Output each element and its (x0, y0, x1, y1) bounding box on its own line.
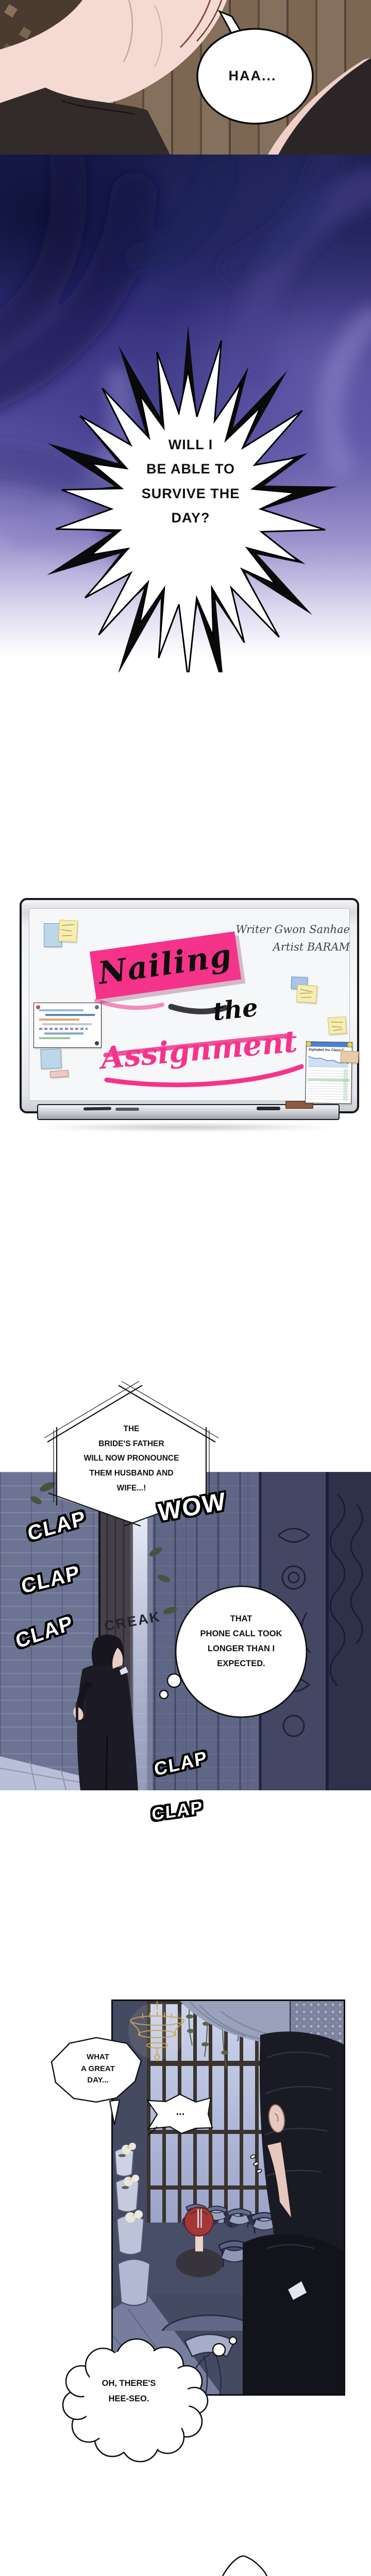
speech-day-text: WHAT A GREAT DAY... (57, 2052, 139, 2087)
sticky-note-tan (340, 1050, 359, 1063)
sfx-sigh-text: HAA... (206, 68, 299, 84)
whiteboard-shadow (31, 1123, 340, 1131)
pin-icon (347, 1042, 352, 1047)
pin-icon (306, 1041, 311, 1046)
announcement-text: THE BRIDE'S FATHER WILL NOW PRONOUNCE TH… (64, 1422, 198, 1496)
speech-bubble-haa (197, 11, 313, 124)
webtoon-page: HAA... WILL I BE ABLE TO SURVIVE THE DAY… (0, 0, 371, 2576)
panel-sigh: HAA... (0, 0, 371, 155)
marker-icon (257, 1107, 280, 1110)
title-whiteboard: Writer Gwon Sanhae Artist BARAM Nailing … (20, 898, 359, 1113)
marker-icon (83, 1107, 111, 1111)
burst-text: WILL I BE ABLE TO SURVIVE THE DAY? (116, 433, 265, 530)
panel-anxiety (0, 155, 371, 672)
whiteboard-surface: Writer Gwon Sanhae Artist BARAM Nailing … (29, 908, 350, 1101)
bubble-overlay (0, 1381, 371, 2576)
panel-sigh-art (0, 0, 371, 155)
next-panel-collar-line (223, 2556, 267, 2576)
speech-dots-text: ... (155, 2106, 206, 2118)
title-word-the: the (211, 993, 259, 1027)
swirl-art (0, 155, 371, 672)
whiteboard-tray (37, 1104, 340, 1120)
thought-phone-text: THAT PHONE CALL TOOK LONGER THAN I EXPEC… (179, 1612, 303, 1671)
thought-heeseo-text: OH, THERE'S HEE-SEO. (72, 2376, 185, 2406)
marker-icon (115, 1108, 139, 1111)
